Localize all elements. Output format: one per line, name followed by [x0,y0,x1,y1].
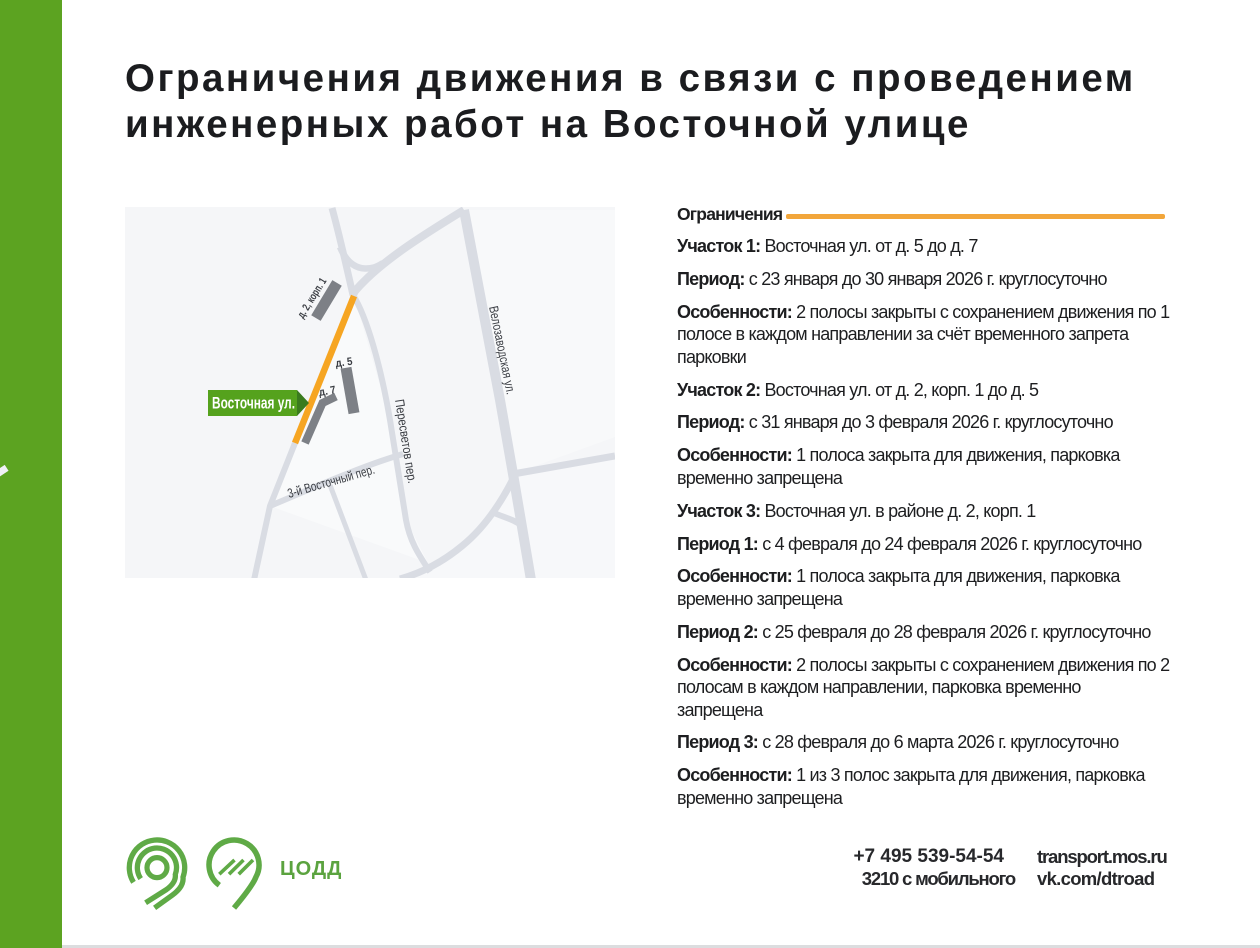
svg-text:Восточная ул.: Восточная ул. [212,395,295,413]
svg-text:д. 5: д. 5 [335,356,354,370]
